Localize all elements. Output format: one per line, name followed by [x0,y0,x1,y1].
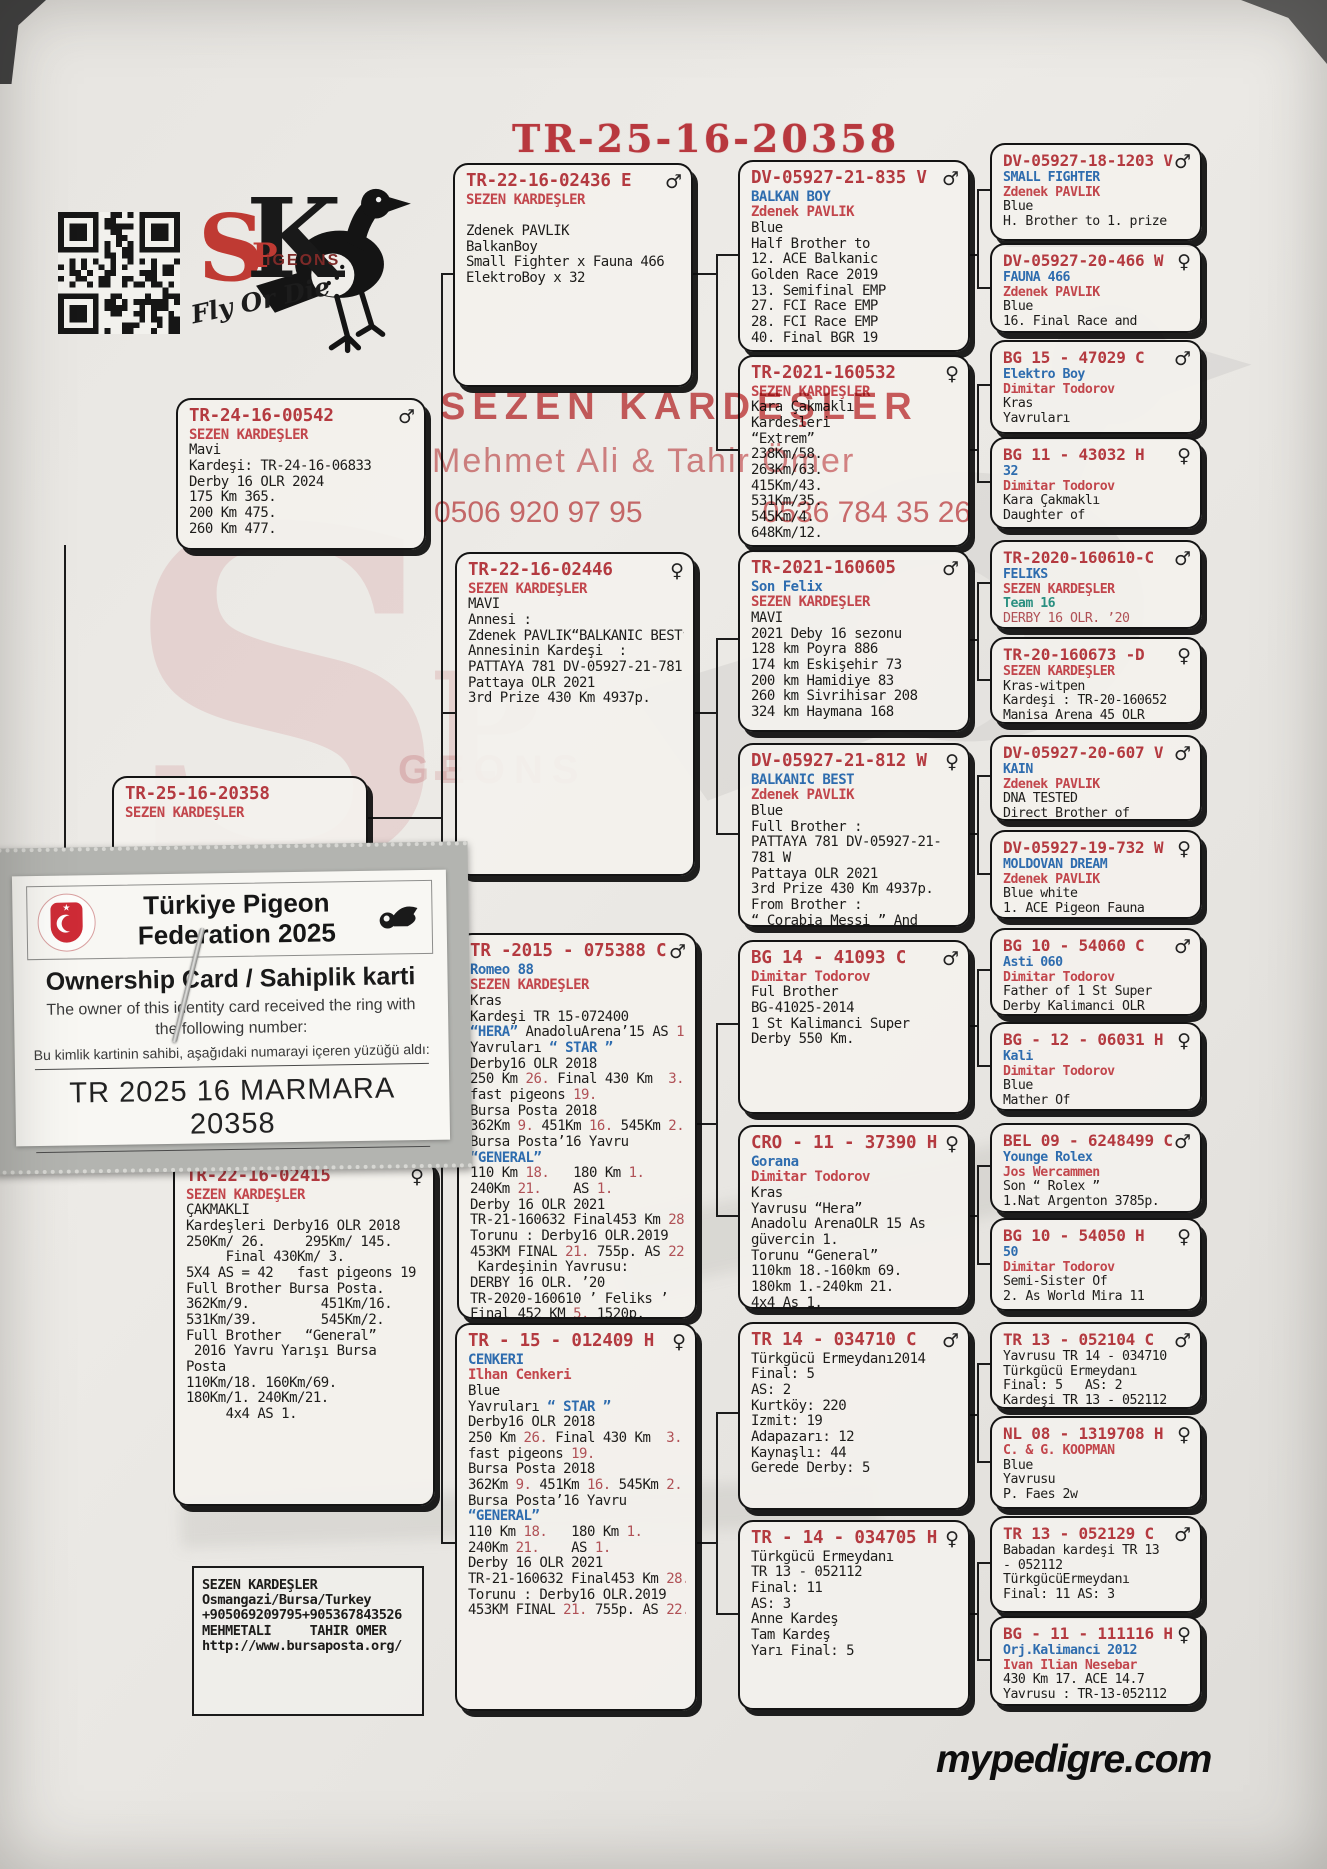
box-line: SEZEN KARDEŞLER [1003,583,1191,598]
box-line: DV-05927-20-466 W [1003,252,1191,270]
box-line: “GENERAL” [470,1151,686,1167]
male-icon: ♂ [942,1330,959,1352]
box-line: TR - 14 - 034705 H [751,1529,959,1549]
owner-stamp-owners: Mehmet Ali & Tahir Ömer [432,442,855,481]
box-line: Kara Çakmaklı [1003,494,1191,509]
owner-stamp-phone2: 0536 784 35 26 [763,496,972,530]
box-line: Torunu : Derby16 OLR.2019 [468,1588,686,1604]
box-line: İlhan Cenkeri [468,1368,686,1384]
box-line: 4x4 AS 1. [186,1407,424,1423]
box-line: MAVİ [751,611,959,627]
box-line: BG - 11 - 111116 H [1003,1625,1191,1643]
box-line: Anne Kardeş [751,1612,959,1628]
qr-code [58,212,180,334]
box-line: 260 Km 477. [189,522,415,538]
box-line: Final: 5 [751,1367,959,1383]
pedigree-connector-line [977,190,979,289]
logo-igeons-text: iGEONS [266,252,340,270]
box-line: Small Fighter x Fauna 466 [466,255,682,271]
box-line: Kardeşinin Yavrusu: [470,1260,686,1276]
box-line: Kras [470,994,686,1010]
box-line: 110 Km 18. 180 Km 1. [470,1166,686,1182]
box-line: Yavrusu [1003,1473,1191,1488]
box-line: Derby16 OLR 2018 [468,1415,686,1431]
box-line: 174 km Eskişehir 73 [751,658,959,674]
box-line: TR-21-160632 Final453 Km 28. [470,1213,686,1229]
sk-pigeons-logo: S K P iGEONS Fly Or Die [190,178,440,388]
pedigree-box-tr22-02415: ♀TR-22-16-02415SEZEN KARDEŞLERÇAKMAKLIKa… [173,1158,435,1506]
box-line: Blue [1003,1459,1191,1474]
pedigree-connector-line [716,1413,718,1615]
pedigree-box-tr13-052104: ♂TR 13 - 052104 CYavrusu TR 14 - 034710T… [990,1322,1202,1409]
box-line: Zdenek PAVLİK [1003,778,1191,793]
box-line: Dimitar Todorov [751,970,959,986]
box-line: Full Brother : [751,820,959,836]
box-line: 1 St Kalimanci Super [751,1017,959,1033]
pedigree-box-dv-1203: ♂DV-05927-18-1203 VSMALL FIGHTERZdenek P… [990,143,1202,241]
male-icon: ♂ [1174,1524,1191,1546]
box-line: Annesinin Kardeşi : [468,644,684,660]
pedigree-connector-line [977,1563,979,1661]
box-line: “HERA” AnadoluArena’15 AS 1. [470,1025,686,1041]
box-line: Kras-witpen [1003,680,1191,695]
box-line: DNA TESTED [1003,792,1191,807]
box-line: 3rd Prize 430 Km 4937p. [468,691,684,707]
male-icon: ♂ [942,558,959,580]
box-line: DERBY 16 OLR. ’20 [1003,612,1191,627]
box-line: DV-05927-20-607 V [1003,744,1191,762]
box-line: BG 11 - 43032 H [1003,446,1191,464]
male-icon: ♂ [1174,348,1191,370]
pedigree-box-tr22-02436: ♂TR-22-16-02436 ESEZEN KARDEŞLER Zdenek … [453,163,693,387]
box-line: TR - 15 - 012409 H [468,1332,686,1352]
pedigree-box-bg10-54050: ♀BG 10 - 54050 H50Dimitar TodorovSemi-Si… [990,1218,1202,1311]
box-line: Zdenek PAVLİK [1003,873,1191,888]
box-line: 362Km 9. 451Km 16. 545Km 2. [470,1119,686,1135]
box-line: 50 [1003,1246,1191,1261]
male-icon: ♂ [1174,548,1191,570]
box-line: MOLDOVAN DREAM [1003,858,1191,873]
pedigree-connector-line [716,833,738,835]
pedigree-connector-line [977,873,990,875]
pedigree-connector-line [697,1542,718,1544]
box-line: 110Km/18. 160Km/69. [186,1376,424,1392]
pedigree-box-contact: SEZEN KARDEŞLEROsmangazi/Bursa/Turkey+90… [192,1566,424,1716]
box-line: - 052112 [1003,1559,1191,1574]
box-line: MEHMETALİ TAHİR ÖMER [202,1624,414,1639]
box-line: TR 13 - 052104 C [1003,1331,1191,1349]
box-line: DV-05927-21-835 V [751,169,959,189]
box-line: 240Km 21. AS 1. [470,1182,686,1198]
pedigree-box-bg11-111116: ♀BG - 11 - 111116 HOrj.Kalimanci 2012İva… [990,1616,1202,1706]
box-line: TR-2020-160610 ’ Feliks ’ [470,1292,686,1308]
box-line: “ Corabia Messi ” And [751,914,959,927]
box-line: Kras [751,1186,959,1202]
female-icon: ♀ [1177,1624,1191,1646]
pedigree-connector-line [64,545,66,898]
box-line: 28. FCI Race EMP [751,315,959,331]
pedigree-connector-line [977,679,990,681]
box-line: P. Faes 2w [1003,1488,1191,1503]
pedigree-connector-line [977,970,979,1067]
male-icon: ♂ [1174,743,1191,765]
female-icon: ♀ [1177,645,1191,667]
box-line: Kali [1003,1050,1191,1065]
box-line: TR-2021-160605 [751,559,959,579]
pedigree-connector-line [977,385,979,483]
box-line: 110km 18.-160km 69. [751,1264,959,1280]
box-line: SEZEN KARDEŞLER [189,428,415,444]
box-line: Yavruları “ STAR ” [468,1400,686,1416]
box-line: Babadan kardeşi TR 13 [1003,1544,1191,1559]
box-line: 12. ACE Balkanic [751,252,959,268]
box-line: Bursa Posta 2018 [470,1104,686,1120]
box-line: DV-05927-19-732 W [1003,839,1191,857]
card-text-en: The owner of this identity card received… [28,995,435,1043]
box-line: İvan İlian Nesebar [1003,1659,1191,1674]
pedigree-connector-line [716,1613,738,1615]
box-line: 27. FCI Race EMP [751,299,959,315]
box-line: AS: 3 [751,1597,959,1613]
page-title-ring-number: TR-25-16-20358 [512,116,899,161]
box-line: Derby 16 OLR 2021 [470,1198,686,1214]
box-line: 16. Final Race and [1003,315,1191,330]
box-line: 1.Nat Argenton 3785p. [1003,1195,1191,1210]
box-line: Dimitar Todorov [1003,383,1191,398]
pedigree-box-tr2021-160605: ♂TR-2021-160605Son FelixSEZEN KARDEŞLERM… [738,550,970,732]
pedigree-connector-line [977,1166,979,1265]
box-line: 324 km Haymana 168 [751,705,959,721]
box-line: ÇAKMAKLI [186,1203,424,1219]
box-line: 250Km/ 26. 295Km/ 145. [186,1235,424,1251]
female-icon: ♀ [1177,445,1191,467]
box-line: Zdenek PAVLİK“BALKANIC BEST” [468,629,684,645]
box-line: Torunu : Derby16 OLR.2019 [470,1229,686,1245]
owner-stamp-phones: 0506 920 97 95 0536 784 35 26 [434,496,971,530]
box-line: 5X4 AS = 42 fast pigeons 19 [186,1266,424,1282]
box-line: 2. As World Mira 11 [1003,1290,1191,1305]
pedigree-connector-line [977,1363,990,1365]
male-icon: ♂ [1174,151,1191,173]
pedigree-connector-line [977,969,990,971]
pedigree-connector-line [716,639,718,835]
pedigree-connector-line [977,1562,990,1564]
pedigree-box-cro11-37390: ♀CRO - 11 - 37390 HGoranaDimitar Todorov… [738,1125,970,1309]
box-line: Yavruları “ STAR ” [470,1041,686,1057]
box-line: Yarı Final: 5 [751,1644,959,1660]
federation-pigeon-icon [377,898,422,936]
box-line: Anadolu ArenaOLR 15 As [751,1217,959,1233]
box-line: BG 10 - 54060 C [1003,937,1191,955]
box-line: Semi-Sister Of [1003,1275,1191,1290]
box-line: From Brother : [751,898,959,914]
box-line: Zdenek PAVLİK [1003,286,1191,301]
box-line: Bursa Posta 2018 [468,1462,686,1478]
box-line: Younge Rolex [1003,1151,1191,1166]
box-line: güvercin 1. [751,1233,959,1249]
box-line: Zdenek PAVLİK [466,224,682,240]
box-line: Yavruları [1003,412,1191,427]
box-line: Tam Kardeş [751,1628,959,1644]
box-line: Dimitar Todorov [1003,1065,1191,1080]
pedigree-connector-line [716,254,738,256]
pedigree-box-tr2020-160610: ♂TR-2020-160610-CFELİKSSEZEN KARDEŞLERTe… [990,540,1202,629]
box-line: DV-05927-18-1203 V [1003,152,1191,170]
box-line: fast pigeons 19. [468,1447,686,1463]
box-line: AS: 2 [751,1383,959,1399]
box-line: TR-2021-160532 [751,364,959,384]
box-line [466,208,682,224]
box-line: Romeo 88 [470,963,686,979]
pedigree-box-bg10-54060: ♂BG 10 - 54060 CAsti 060Dimitar TodorovF… [990,928,1202,1016]
pedigree-box-tr22-02446: ♀TR-22-16-02446SEZEN KARDEŞLERMAVİAnnesi… [455,552,695,876]
pedigree-connector-line [716,1024,718,1217]
box-line: TR-24-16-00542 [189,407,415,427]
box-line: Orj.Kalimanci 2012 [1003,1644,1191,1659]
box-line: 13. Semifinal EMP [751,284,959,300]
box-line: Annesi : [468,613,684,629]
female-icon: ♀ [1177,838,1191,860]
box-line: TR-20-160673 -D [1003,646,1191,664]
pedigree-box-bg11-43032: ♀BG 11 - 43032 H32Dimitar TodorovKara Ça… [990,437,1202,529]
box-line: Elektro Boy [1003,368,1191,383]
box-line: 175 Km 365. [189,490,415,506]
box-line: “GENERAL” [468,1509,686,1525]
pedigree-box-tr14-034705: ♀TR - 14 - 034705 HTürkgücü ErmeydanıTR … [738,1520,970,1710]
female-icon: ♀ [1177,251,1191,273]
box-line: Torunu “General” [751,1249,959,1265]
pedigree-box-dv-607: ♂DV-05927-20-607 VKAINZdenek PAVLİKDNA T… [990,735,1202,821]
box-line: Mather Of [1003,1094,1191,1109]
box-line: TR-25-16-20358 [125,785,357,805]
box-line: Derby 16 OLR 2024 [189,475,415,491]
box-line: 250 Km 26. Final 430 Km 3. [470,1072,686,1088]
box-line: TR-22-16-02436 E [466,172,682,192]
box-line: C. & G. KOOPMAN [1003,1444,1191,1459]
pedigree-connector-line [977,1165,990,1167]
box-line: DV-05927-21-812 W [751,752,959,772]
male-icon: ♂ [669,941,686,963]
box-line: 3rd Prize 430 Km 4937p. [751,882,959,898]
box-line: Bursa Posta’16 Yavru [468,1494,686,1510]
box-line: Son Felix [751,580,959,596]
box-line: 110 Km 18. 180 Km 1. [468,1525,686,1541]
pedigree-connector-line [368,817,443,819]
box-line: Jos Wercammen [1003,1166,1191,1181]
box-line: TR 13 - 052129 C [1003,1525,1191,1543]
box-line: 531Km/39. 545Km/2. [186,1313,424,1329]
female-icon: ♀ [1177,1030,1191,1052]
box-line: Kurtköy: 220 [751,1399,959,1415]
box-line: TR-22-16-02446 [468,561,684,581]
box-line: Kardeşi TR 13 - 052112 [1003,1394,1191,1409]
box-line: SEZEN KARDEŞLER [186,1188,424,1204]
pedigree-box-tr13-052129: ♂TR 13 - 052129 CBabadan kardeşi TR 13- … [990,1516,1202,1613]
box-line: BG 15 - 47029 C [1003,349,1191,367]
federation-title: Türkiye Pigeon Federation 2025 [103,888,370,952]
box-line: Kardeşi TR 15-072400 [470,1010,686,1026]
box-line: 40. Final BGR 19 [751,331,959,347]
pedigree-connector-line [695,712,718,714]
female-icon: ♀ [672,1331,686,1353]
box-line: Ful Brother [751,985,959,1001]
pedigree-connector-line [977,1263,990,1265]
pedigree-connector-line [977,189,990,191]
pedigree-box-dv-835: ♂DV-05927-21-835 VBALKAN BOYZdenek PAVLİ… [738,160,970,352]
box-line: FAUNA 466 [1003,271,1191,286]
female-icon: ♀ [945,363,959,385]
male-icon: ♂ [398,406,415,428]
box-line: Son “ Rolex ” [1003,1180,1191,1195]
box-line: TR-21-160632 Final453 Km 28. [468,1572,686,1588]
box-line: Derby 550 Km. [751,1032,959,1048]
box-line: NL 08 - 1319708 H [1003,1425,1191,1443]
male-icon: ♂ [1174,936,1191,958]
male-icon: ♂ [1174,1131,1191,1153]
box-line: Dimitar Todorov [1003,1261,1191,1276]
box-line: BALKANIC BEST [751,773,959,789]
pedigree-connector-line [716,1412,738,1414]
pedigree-connector-line [977,287,990,289]
box-line: PATTAYA 781 DV-05927-21-781 W [468,660,684,676]
box-line: 362Km/9. 451Km/16. [186,1297,424,1313]
pedigree-box-bel09-6248499: ♂BEL 09 - 6248499 CYounge RolexJos Werca… [990,1123,1202,1213]
box-line: Dimitar Todorov [1003,480,1191,495]
pedigree-box-dv-812: ♀DV-05927-21-812 WBALKANIC BESTZdenek PA… [738,743,970,927]
pedigree-connector-line [977,1659,990,1661]
male-icon: ♂ [1174,1330,1191,1352]
box-line: Türkgücü Ermeydanı [751,1550,959,1566]
box-line: 2021 Deby 16 sezonu [751,627,959,643]
box-line: SEZEN KARDEŞLER [751,595,959,611]
box-line: PATTAYA 781 DV-05927-21- [751,835,959,851]
box-line: TR -2015 - 075388 C [470,942,686,962]
box-line: CRO - 11 - 37390 H [751,1134,959,1154]
box-line: Blue [1003,300,1191,315]
ownership-card-inner: ★ Türkiye Pigeon Federation 2025 Ownersh… [12,870,450,1147]
pedigree-box-tr24-00542: ♂TR-24-16-00542SEZEN KARDEŞLERMaviKardeş… [176,398,426,550]
pedigree-connector-line [977,481,990,483]
box-line: Half Brother to [751,237,959,253]
pedigree-box-bg14-41093: ♂BG 14 - 41093 CDimitar TodorovFul Broth… [738,940,970,1114]
female-icon: ♀ [945,1528,959,1550]
owner-stamp-name: SEZEN KARDEŞLER [440,386,919,429]
box-line: Blue [751,221,959,237]
federation-logo-icon: ★ [37,893,96,952]
pedigree-box-dv-466: ♀DV-05927-20-466 WFAUNA 466Zdenek PAVLİK… [990,243,1202,333]
box-line: Final: 11 [751,1581,959,1597]
box-line: BalkanBoy [466,240,682,256]
box-line: 200 km Hamidiye 83 [751,674,959,690]
box-line: Full Brother “General” [186,1329,424,1345]
box-line: BG 10 - 54050 H [1003,1227,1191,1245]
box-line: Final 452 KM 5. 1520p. [470,1307,686,1319]
box-line: Türkgücü Ermeydanı2014 [751,1352,959,1368]
box-line: Kardeşi : TR-20-160652 [1003,694,1191,709]
box-line: Golden Race 2019 [751,268,959,284]
pedigree-connector-line [716,1215,738,1217]
pedigree-connector-line [977,384,990,386]
card-text-tr: Bu kimlik kartinin sahibi, aşağıdaki num… [29,1041,435,1063]
pedigree-connector-line [716,638,738,640]
box-line: SEZEN KARDEŞLER [202,1578,414,1593]
box-line: 1. ACE Pigeon Fauna [1003,902,1191,917]
box-line: SEZEN KARDEŞLER [466,193,682,209]
box-line: +905069209795+905367843526 [202,1608,414,1623]
pedigree-connector-line [697,1123,718,1125]
box-line: DERBY 16 OLR. ’20 [470,1276,686,1292]
box-line: Asti 060 [1003,956,1191,971]
box-line: BG-41025-2014 [751,1001,959,1017]
female-icon: ♀ [670,560,684,582]
pedigree-connector-line [977,775,990,777]
female-icon: ♀ [410,1166,424,1188]
owner-stamp-phone1: 0506 920 97 95 [434,496,643,530]
pedigree-connector-line [977,776,979,875]
box-line: SMALL FIGHTER [1003,171,1191,186]
box-line: Türkgücü Ermeydanı [1003,1365,1191,1380]
box-line: H. Brother to 1. prize [1003,215,1191,230]
box-line: 362Km 9. 451Km 16. 545Km 2. [468,1478,686,1494]
box-line: Bursa Posta’16 Yavru [470,1135,686,1151]
box-line: 260 km Sivrihisar 208 [751,689,959,705]
box-line: ElektroBoy x 32 [466,271,682,287]
federation-header: ★ Türkiye Pigeon Federation 2025 [26,880,433,960]
box-line: Father of 1 St Super [1003,985,1191,1000]
box-line: Yavrusu : TR-13-052112 [1003,1688,1191,1703]
male-icon: ♂ [665,171,682,193]
male-icon: ♂ [942,168,959,190]
pedigree-box-tr20-160673: ♀TR-20-160673 -DSEZEN KARDEŞLERKras-witp… [990,637,1202,724]
pedigree-box-tr14-034710: ♂TR 14 - 034710 CTürkgücü Ermeydanı2014F… [738,1322,970,1510]
box-line: 250 Km 26. Final 430 Km 3. [468,1431,686,1447]
pedigree-connector-line [977,1065,990,1067]
pedigree-box-tr15-012409: ♀TR - 15 - 012409 HCENKERİİlhan CenkeriB… [455,1323,697,1711]
female-icon: ♀ [945,1133,959,1155]
box-line: SEZEN KARDEŞLER [468,582,684,598]
pedigree-connector-line [977,1364,979,1463]
box-line: Zdenek PAVLİK [1003,186,1191,201]
box-line: Full Brother Bursa Posta. [186,1282,424,1298]
box-line: TürkgücüErmeydanı [1003,1573,1191,1588]
pedigree-connector-line [716,1023,738,1025]
box-line: Derby 16 OLR 2021 [468,1556,686,1572]
box-line: Mavi [189,443,415,459]
ring-number: TR 2025 16 MARMARA 20358 [35,1063,430,1153]
box-line: Kras [1003,397,1191,412]
pedigree-box-nl08-1319708: ♀NL 08 - 1319708 HC. & G. KOOPMANBlueYav… [990,1416,1202,1509]
female-icon: ♀ [1177,1424,1191,1446]
box-line: Blue [468,1384,686,1400]
box-line: Yavrusu “Hera” [751,1202,959,1218]
box-line: Dimitar Todorov [1003,971,1191,986]
box-line: Blue [1003,200,1191,215]
box-line: Derby16 OLR 2018 [470,1057,686,1073]
box-line: SEZEN KARDEŞLER [1003,665,1191,680]
box-line: Final: 5 AS: 2 [1003,1379,1191,1394]
box-line: İzmit: 19 [751,1414,959,1430]
male-icon: ♂ [942,948,959,970]
pedigree-connector-line [977,582,990,584]
female-icon: ♀ [1177,1226,1191,1248]
box-line: Zdenek PAVLİK [751,205,959,221]
box-line: BG 14 - 41093 C [751,949,959,969]
box-line: 781 W [751,851,959,867]
box-line: 200 Km 475. [189,506,415,522]
box-line: Manisa Arena 45 OLR [1003,709,1191,724]
box-line: 180km 1.-240km 21. [751,1280,959,1296]
box-line: 128 km Poyra 886 [751,642,959,658]
